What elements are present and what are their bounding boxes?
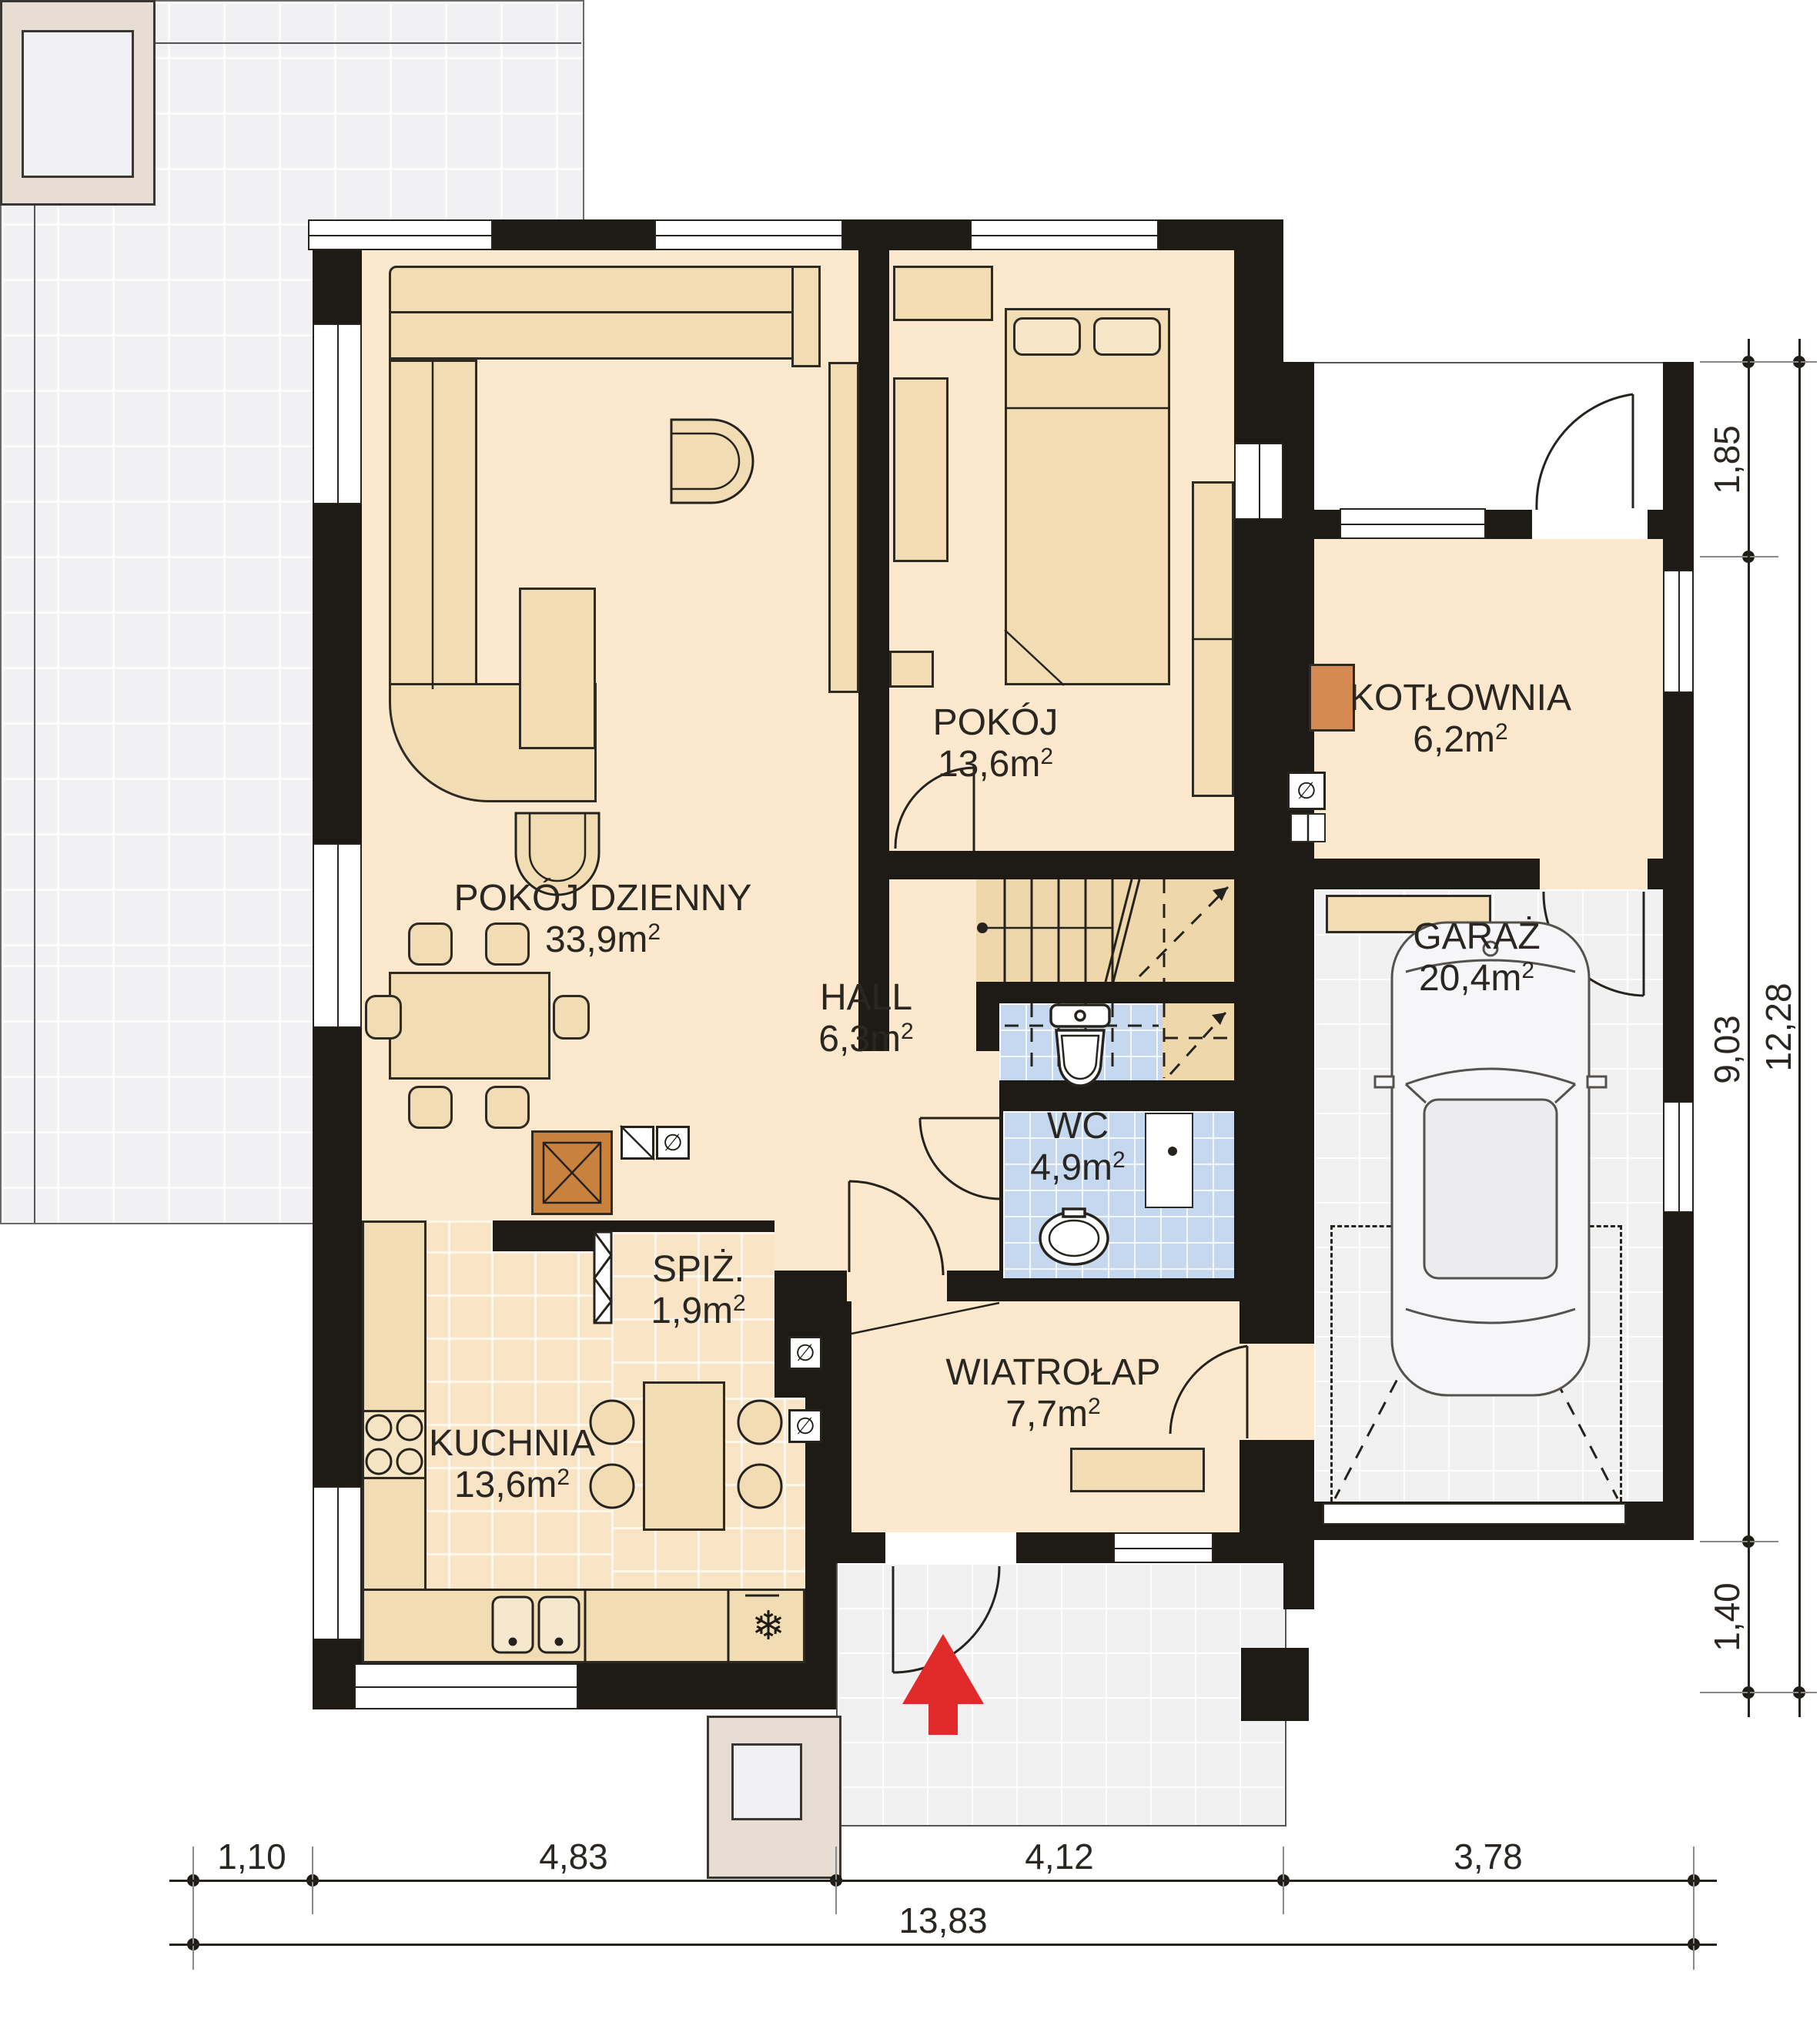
room-name: POKÓJ DZIENNY bbox=[454, 878, 752, 919]
room-area: 13,6m2 bbox=[764, 744, 1226, 785]
floor-plan-canvas: ∅ ❄ ∅ ∅ ∅ bbox=[0, 0, 1820, 2019]
room-name: WC bbox=[1047, 1106, 1109, 1147]
dim-bottom-total: 13,83 bbox=[882, 1903, 1005, 1938]
label-kitchen: KUCHNIA 13,6m2 bbox=[281, 1423, 743, 1506]
fireplace-hatch bbox=[544, 1126, 654, 1203]
dim-line-bottom-main bbox=[169, 1880, 1717, 1882]
dim-right-2: 9,03 bbox=[1709, 988, 1745, 1111]
room-name: POKÓJ bbox=[933, 702, 1059, 743]
dim-right-1: 1,85 bbox=[1709, 398, 1745, 521]
entrance-arrow bbox=[902, 1634, 984, 1735]
dim-bottom-3: 4,12 bbox=[998, 1839, 1121, 1874]
room-name: GARAŻ bbox=[1413, 916, 1540, 957]
kitchen-sink bbox=[493, 1589, 779, 1663]
room-area: 6,2m2 bbox=[1230, 719, 1691, 761]
washbasin bbox=[1040, 1209, 1108, 1264]
ext-tick-b5 bbox=[1693, 1847, 1695, 1970]
label-living: POKÓJ DZIENNY 33,9m2 bbox=[372, 878, 834, 961]
label-wiatrolap: WIATROŁAP 7,7m2 bbox=[822, 1352, 1284, 1435]
room-area: 33,9m2 bbox=[372, 919, 834, 961]
dim-bottom-2: 4,83 bbox=[512, 1839, 635, 1874]
room-area: 13,6m2 bbox=[281, 1465, 743, 1506]
room-area: 6,3m2 bbox=[635, 1019, 1097, 1060]
ext-line-right-2 bbox=[1700, 556, 1778, 557]
armchair-2 bbox=[671, 420, 753, 503]
dim-right-3: 1,40 bbox=[1709, 1555, 1745, 1679]
room-name: WIATROŁAP bbox=[945, 1352, 1160, 1393]
label-bedroom: POKÓJ 13,6m2 bbox=[764, 702, 1226, 785]
label-wc: WC 4,9m2 bbox=[847, 1106, 1309, 1189]
room-name: KUCHNIA bbox=[429, 1423, 595, 1464]
room-area: 4,9m2 bbox=[847, 1147, 1309, 1189]
dim-right-total: 12,28 bbox=[1761, 966, 1796, 1089]
label-hall: HALL 6,3m2 bbox=[635, 977, 1097, 1060]
dim-bottom-1: 1,10 bbox=[190, 1839, 313, 1874]
room-area: 20,4m2 bbox=[1246, 958, 1708, 999]
label-pantry: SPIŻ. 1,9m2 bbox=[467, 1249, 929, 1332]
room-name: HALL bbox=[820, 977, 912, 1018]
room-area: 1,9m2 bbox=[467, 1291, 929, 1332]
door-boiler-entry bbox=[1537, 394, 1633, 510]
room-name: SPIŻ. bbox=[652, 1249, 744, 1290]
label-garage: GARAŻ 20,4m2 bbox=[1246, 916, 1708, 999]
label-boiler-room: KOTŁOWNIA 6,2m2 bbox=[1230, 678, 1691, 761]
ext-line-right-3 bbox=[1700, 1541, 1778, 1542]
room-name: KOTŁOWNIA bbox=[1350, 678, 1571, 718]
dim-line-right-inner bbox=[1748, 339, 1750, 1717]
room-area: 7,7m2 bbox=[822, 1394, 1284, 1435]
dim-bottom-4: 3,78 bbox=[1427, 1839, 1550, 1874]
dim-line-bottom-total bbox=[169, 1944, 1717, 1946]
